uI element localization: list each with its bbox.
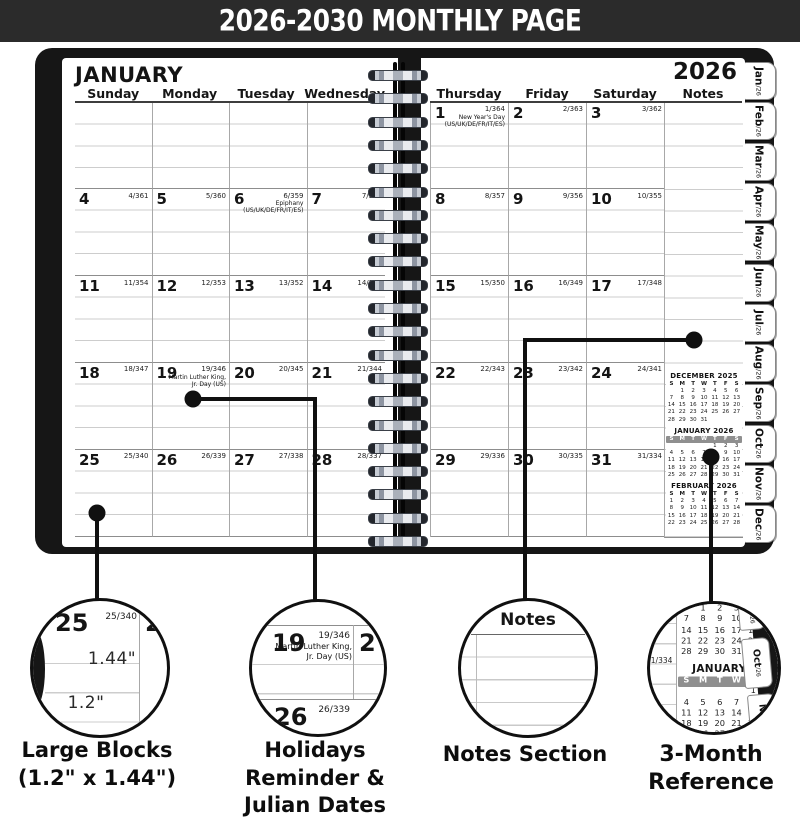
mini-calendar-week-row: 891011121314 xyxy=(666,505,742,512)
dow-letter: S xyxy=(666,491,677,498)
day-cell: 33/362 xyxy=(587,103,665,190)
holiday-label: Epiphany(US/UK/DE/FR/IT/ES) xyxy=(243,200,303,214)
day-number: 30 xyxy=(513,451,534,469)
mini-day: 3 xyxy=(778,688,781,699)
mini-day: 27 xyxy=(731,409,742,416)
binding-coil xyxy=(368,163,428,174)
julian-date: 6/359 xyxy=(283,192,303,200)
magnifier-holidays: 7 19 19/346 Martin Luther King, Jr. Day … xyxy=(249,599,387,737)
mini-day: 6 xyxy=(720,498,731,505)
magnified-tab-sep: Sep/26 xyxy=(736,601,766,631)
tab-label: Oct/26 xyxy=(746,648,767,677)
day-number: 3 xyxy=(591,104,601,122)
holiday-label: New Year's Day(US/UK/DE/FR/IT/ES) xyxy=(445,114,505,128)
mini-day: 20 xyxy=(778,626,781,637)
mini-calendar-dow-row: SMTWTFS xyxy=(666,491,742,498)
mini-day: 9 xyxy=(720,450,731,457)
mini-day: 21 xyxy=(666,409,677,416)
julian-fragment: 31/334 xyxy=(647,656,672,665)
next-day-fragment: 2 xyxy=(145,609,162,637)
mini-day: 26 xyxy=(695,731,712,735)
julian-date: 24/341 xyxy=(637,365,662,373)
magnified-tab-oct: Oct/26 xyxy=(741,637,773,689)
tab-year: /26 xyxy=(755,168,763,178)
day-number: 21 xyxy=(312,364,333,382)
mini-day: 13 xyxy=(688,457,699,464)
tab-label: Nov/26 xyxy=(750,467,769,500)
julian-date: 8/357 xyxy=(485,192,505,200)
julian-date: 26/339 xyxy=(201,452,226,460)
mini-day: 4 xyxy=(699,498,710,505)
day-cell: 1010/355 xyxy=(587,189,665,276)
caption-notes: Notes Section xyxy=(430,741,620,769)
right-month-grid: 11/364New Year's Day(US/UK/DE/FR/IT/ES)2… xyxy=(430,103,665,537)
mini-day: 19 xyxy=(695,720,712,731)
dow-letter: S xyxy=(731,491,742,498)
julian-date: 15/350 xyxy=(480,279,505,287)
tab-apr: Apr/26 xyxy=(742,183,776,221)
mini-day: 13 xyxy=(720,505,731,512)
mini-day: 29 xyxy=(695,648,712,659)
mini-calendar-week-row: 78910111213 xyxy=(666,395,742,402)
mini-day: 9 xyxy=(688,395,699,402)
mini-day: 5 xyxy=(677,450,688,457)
mini-day: 17 xyxy=(778,709,781,720)
mini-day xyxy=(728,688,745,699)
tab-month: Oct xyxy=(753,428,765,448)
day-cell: 11/364New Year's Day(US/UK/DE/FR/IT/ES) xyxy=(431,103,509,190)
dow-letter: S xyxy=(666,381,677,388)
day-number: 4 xyxy=(79,190,89,208)
day-number: 22 xyxy=(435,364,456,382)
tab-sep: Sep/26 xyxy=(742,384,776,422)
mini-calendar-dow-row: SMTWTFS xyxy=(666,436,742,443)
mini-day: 2 xyxy=(688,388,699,395)
mini-day: 1 xyxy=(666,498,677,505)
mini-day: 20 xyxy=(688,465,699,472)
day-cell: 22/363 xyxy=(509,103,587,190)
mini-day: 12 xyxy=(677,457,688,464)
julian-date: 10/355 xyxy=(637,192,662,200)
binding-coil xyxy=(368,303,428,314)
dow-letter: T xyxy=(688,436,699,443)
mini-day: 5 xyxy=(720,388,731,395)
mini-day: 8 xyxy=(709,450,720,457)
banner-title: 2026-2030 MONTHLY PAGE xyxy=(219,4,582,37)
mini-day: 25 xyxy=(709,409,720,416)
binding-coil xyxy=(368,93,428,104)
binding-coil xyxy=(368,489,428,500)
mini-day: 26 xyxy=(677,472,688,479)
tab-oct: Oct/26 xyxy=(742,425,776,463)
mini-day: 17 xyxy=(688,513,699,520)
dow-letter: F xyxy=(720,491,731,498)
day-number: 17 xyxy=(591,277,612,295)
day-number: 9 xyxy=(513,190,523,208)
julian-fragment: 7 xyxy=(256,614,262,624)
notes-column: DECEMBER 2025SMTWTFS12345678910111213141… xyxy=(664,103,743,538)
tab-year: /26 xyxy=(755,249,763,259)
day-cell: 1515/350 xyxy=(431,276,509,363)
binding-coil xyxy=(368,513,428,524)
mini-day: 2 xyxy=(720,443,731,450)
tab-year: /26 xyxy=(748,614,756,624)
tab-year: /26 xyxy=(755,369,763,379)
day-number: 10 xyxy=(591,190,612,208)
tab-mar: Mar/26 xyxy=(742,143,776,181)
dow-letter: T xyxy=(688,381,699,388)
mini-day: 21 xyxy=(699,465,710,472)
tab-label: Nov/26 xyxy=(752,703,774,735)
mini-day: 16 xyxy=(711,626,728,637)
weekday-label: Thursday xyxy=(430,86,508,101)
binding-coil xyxy=(368,140,428,151)
mini-calendar-week-row: 22232425262728 xyxy=(666,520,742,527)
day-number: 27 xyxy=(234,451,255,469)
mini-day: 13 xyxy=(778,616,781,627)
day-cell: 2626/339 xyxy=(153,450,231,537)
mini-day xyxy=(778,648,781,659)
julian-date: 4/361 xyxy=(128,192,148,200)
day-cell: 55/360 xyxy=(153,189,231,276)
weekday-label: Sunday xyxy=(75,86,151,101)
mini-day: 23 xyxy=(711,637,728,648)
magnified-julian: 25/340 xyxy=(95,612,137,622)
day-cell: 1919/346Martin Luther King,Jr. Day (US) xyxy=(153,363,231,450)
holiday-line: Epiphany xyxy=(243,200,303,207)
tab-feb: Feb/26 xyxy=(742,102,776,140)
mini-calendar-week-row: 25262728293031 xyxy=(666,472,742,479)
mini-day: 23 xyxy=(688,409,699,416)
dow-letter: M xyxy=(677,436,688,443)
tab-dec: Dec/26 xyxy=(742,505,776,543)
mini-day: 24 xyxy=(731,465,742,472)
mini-calendar-week-row: 123 xyxy=(666,443,742,450)
mini-day: 30 xyxy=(711,648,728,659)
day-number: 16 xyxy=(513,277,534,295)
tab-year: /26 xyxy=(755,127,763,137)
day-number: 2 xyxy=(513,104,523,122)
mini-day: 14 xyxy=(666,402,677,409)
binding-coil xyxy=(368,256,428,267)
tab-month: Sep xyxy=(753,387,765,409)
mini-calendar-week-row: 45678910 xyxy=(666,450,742,457)
day-cell: 1212/353 xyxy=(153,276,231,363)
mini-day: 23 xyxy=(720,465,731,472)
mini-day: 18 xyxy=(678,720,695,731)
mini-day: 24 xyxy=(699,409,710,416)
dow-letter: S xyxy=(731,436,742,443)
tab-month: Jun xyxy=(753,268,765,287)
mini-day xyxy=(711,688,728,699)
tab-year: /26 xyxy=(755,207,763,217)
dow-letter: W xyxy=(699,436,710,443)
julian-date: 2/363 xyxy=(563,105,583,113)
dow-letter: S xyxy=(666,436,677,443)
mini-day: 28 xyxy=(728,731,745,735)
weekday-label: Monday xyxy=(151,86,227,101)
julian-date: 23/342 xyxy=(558,365,583,373)
mini-day: 9 xyxy=(711,616,728,627)
mini-day: 20 xyxy=(711,720,728,731)
binding-coil xyxy=(368,117,428,128)
mini-day: 8 xyxy=(666,505,677,512)
mini-day: 27 xyxy=(688,472,699,479)
tab-year: /26 xyxy=(755,409,763,419)
mini-day: 6 xyxy=(731,388,742,395)
mini-day: 23 xyxy=(677,520,688,527)
mini-day: 1 xyxy=(709,443,720,450)
mini-day: 26 xyxy=(720,409,731,416)
holiday-line: Jr. Day (US) xyxy=(169,381,226,388)
julian-date: 12/353 xyxy=(201,279,226,287)
mini-day: 30 xyxy=(688,417,699,424)
mini-day: 2 xyxy=(711,605,728,616)
mini-calendar: DECEMBER 2025SMTWTFS12345678910111213141… xyxy=(666,372,742,424)
mini-day: 12 xyxy=(695,709,712,720)
mini-calendar-title: FEBRUARY 2026 xyxy=(666,482,742,490)
mini-day: 4 xyxy=(709,388,720,395)
cover-edge xyxy=(30,629,45,709)
mini-day: 28 xyxy=(678,648,695,659)
day-cell: 1818/347 xyxy=(75,363,153,450)
mini-day: 11 xyxy=(699,505,710,512)
mini-day: 22 xyxy=(709,465,720,472)
tab-month: Jan xyxy=(753,67,765,85)
magnified-day: 25 xyxy=(55,609,88,637)
tab-year: /26 xyxy=(755,325,763,335)
mini-day: 6 xyxy=(688,450,699,457)
binding-coil xyxy=(368,187,428,198)
mini-calendar-week-row: 14151617181920 xyxy=(666,402,742,409)
mini-day: 6 xyxy=(711,698,728,709)
mini-day: 3 xyxy=(699,388,710,395)
mini-day: 27 xyxy=(720,520,731,527)
mini-day: 4 xyxy=(666,450,677,457)
tab-label: Sep/26 xyxy=(740,601,762,625)
binding-coil xyxy=(368,466,428,477)
tab-year: /26 xyxy=(755,490,763,500)
dow-letter: W xyxy=(699,381,710,388)
julian-date: 22/343 xyxy=(480,365,505,373)
day-number: 23 xyxy=(513,364,534,382)
julian-date: 13/352 xyxy=(279,279,304,287)
mini-day: 14 xyxy=(678,626,695,637)
day-cell: 44/361 xyxy=(75,189,153,276)
binding-coil xyxy=(368,373,428,384)
day-cell: 2424/341 xyxy=(587,363,665,450)
julian-date: 1/364 xyxy=(485,105,505,113)
mini-day: 10 xyxy=(778,698,781,709)
mini-day: 10 xyxy=(688,505,699,512)
empty-day-cell xyxy=(230,103,308,190)
mini-calendar-week-row: 15161718192021 xyxy=(666,513,742,520)
dow-letter: M xyxy=(677,381,688,388)
day-number: 18 xyxy=(79,364,100,382)
holiday-line: (US/UK/DE/FR/IT/ES) xyxy=(243,207,303,214)
tab-month: Dec xyxy=(753,508,765,530)
julian-date: 20/345 xyxy=(279,365,304,373)
dow-letter: S xyxy=(778,601,781,605)
mini-day: 28 xyxy=(666,417,677,424)
row-border xyxy=(252,625,384,626)
tab-label: Apr/26 xyxy=(750,186,769,217)
mini-calendar-title: JANUARY 2026 xyxy=(666,427,742,435)
mini-day: 31 xyxy=(699,417,710,424)
next-day-fragment: 2 xyxy=(359,629,376,657)
mini-day: 16 xyxy=(720,457,731,464)
julian-date: 5/360 xyxy=(206,192,226,200)
mini-day xyxy=(688,443,699,450)
mini-day: 11 xyxy=(678,709,695,720)
dow-letter: S xyxy=(678,677,695,688)
mini-day: 29 xyxy=(709,472,720,479)
three-month-reference: DECEMBER 2025SMTWTFS12345678910111213141… xyxy=(666,369,742,529)
mini-calendar: JANUARY 2026SMTWTFS123456789101112131415… xyxy=(666,427,742,479)
day-number: 13 xyxy=(234,277,255,295)
binding-coil xyxy=(368,233,428,244)
mini-day: 24 xyxy=(778,720,781,731)
tab-label: Oct/26 xyxy=(750,428,769,459)
mini-calendar-title: DECEMBER 2025 xyxy=(666,372,742,380)
mini-day: 27 xyxy=(711,731,728,735)
mini-day: 14 xyxy=(731,505,742,512)
mini-day: 11 xyxy=(666,457,677,464)
day-number: 24 xyxy=(591,364,612,382)
tab-month: Aug xyxy=(753,346,765,369)
julian-date: 27/338 xyxy=(279,452,304,460)
tab-month: Nov xyxy=(753,467,765,490)
tab-jun: Jun/26 xyxy=(742,264,776,302)
day-cell: 99/356 xyxy=(509,189,587,276)
mini-day: 7 xyxy=(731,498,742,505)
mini-day xyxy=(677,443,688,450)
dow-letter: F xyxy=(720,436,731,443)
day-cell: 2323/342 xyxy=(509,363,587,450)
tab-month: Oct xyxy=(750,649,763,668)
day-number: 20 xyxy=(234,364,255,382)
tab-label: Mar/26 xyxy=(750,145,769,178)
holiday-line: (US/UK/DE/FR/IT/ES) xyxy=(445,121,505,128)
dow-letter: T xyxy=(711,677,728,688)
tab-label: Feb/26 xyxy=(750,105,769,137)
day-cell: 1111/354 xyxy=(75,276,153,363)
mini-day: 17 xyxy=(699,402,710,409)
mini-day: 18 xyxy=(666,465,677,472)
magnified-julian: 19/346 xyxy=(292,631,350,641)
mini-day: 7 xyxy=(666,395,677,402)
tab-month: Nov xyxy=(756,703,769,725)
mini-day: 2 xyxy=(677,498,688,505)
dow-letter: M xyxy=(695,677,712,688)
mini-day: 28 xyxy=(731,520,742,527)
julian-date: 16/349 xyxy=(558,279,583,287)
day-cell: 66/359Epiphany(US/UK/DE/FR/IT/ES) xyxy=(230,189,308,276)
holiday-line: Martin Luther King, xyxy=(169,374,226,381)
day-cell: 3131/334 xyxy=(587,450,665,537)
tab-label: Jul/26 xyxy=(750,310,769,335)
mini-calendar-week-row: 1234567 xyxy=(666,498,742,505)
mini-day: 19 xyxy=(677,465,688,472)
mini-day: 26 xyxy=(709,520,720,527)
mini-day: 15 xyxy=(666,513,677,520)
empty-day-cell xyxy=(75,103,153,190)
day-number: 8 xyxy=(435,190,445,208)
mini-day: 6 xyxy=(778,605,781,616)
day-number: 25 xyxy=(79,451,100,469)
tab-jan: Jan/26 xyxy=(742,62,776,100)
binding-coil xyxy=(368,326,428,337)
notes-header: Notes xyxy=(461,610,595,630)
julian-date: 3/362 xyxy=(642,105,662,113)
weekday-label: Friday xyxy=(508,86,586,101)
holiday-text: Martin Luther King, Jr. Day (US) xyxy=(275,642,352,661)
tab-jul: Jul/26 xyxy=(742,304,776,342)
mini-day xyxy=(731,417,742,424)
day-cell: 3030/335 xyxy=(509,450,587,537)
mini-day: 18 xyxy=(709,402,720,409)
julian-date: 29/336 xyxy=(480,452,505,460)
mini-day: 27 xyxy=(778,637,781,648)
caption-holidays: Holidays Reminder & Julian Dates xyxy=(205,737,425,820)
year-label: 2026 xyxy=(673,59,737,85)
mini-day: 7 xyxy=(699,450,710,457)
day-cell: 88/357 xyxy=(431,189,509,276)
day-number: 26 xyxy=(157,451,178,469)
tab-label: May/26 xyxy=(750,225,769,260)
mini-day: 10 xyxy=(731,450,742,457)
mini-day: 13 xyxy=(711,709,728,720)
mini-day: 8 xyxy=(695,616,712,627)
day-number: 28 xyxy=(312,451,333,469)
caption-reference: 3-Month Reference xyxy=(601,741,800,796)
weekday-header-row-left: SundayMondayTuesdayWednesday xyxy=(75,86,385,101)
tab-year: /26 xyxy=(760,724,768,734)
mini-day: 22 xyxy=(695,637,712,648)
tab-nov: Nov/26 xyxy=(742,465,776,503)
mini-day: 7 xyxy=(728,698,745,709)
mini-day: 21 xyxy=(731,513,742,520)
mini-day: 7 xyxy=(678,616,695,627)
day-cell: 2222/343 xyxy=(431,363,509,450)
binding-coil xyxy=(368,420,428,431)
julian-date: 19/346 xyxy=(201,365,226,373)
tab-month: Mar xyxy=(753,145,765,168)
mini-day: 16 xyxy=(677,513,688,520)
mini-day: 21 xyxy=(728,720,745,731)
tab-may: May/26 xyxy=(742,223,776,261)
mini-day: 1 xyxy=(677,388,688,395)
mini-day xyxy=(678,605,695,616)
mini-day: 3 xyxy=(688,498,699,505)
weekday-label: Tuesday xyxy=(228,86,304,101)
day-cell: 1616/349 xyxy=(509,276,587,363)
mini-day: 31 xyxy=(778,731,781,735)
binding-coil xyxy=(368,396,428,407)
tab-label: Aug/26 xyxy=(750,346,769,380)
planner-right-page: 2026 ThursdayFridaySaturdayNotes 11/364N… xyxy=(421,58,745,547)
magnifier-large-blocks: 25 25/340 2 1.44" 1.2" xyxy=(30,598,170,738)
mini-day xyxy=(678,688,695,699)
mini-day: 12 xyxy=(709,505,720,512)
dow-letter: T xyxy=(709,436,720,443)
mini-day: 14 xyxy=(728,709,745,720)
mini-day: 5 xyxy=(695,698,712,709)
dow-letter: W xyxy=(728,677,745,688)
julian-date: 11/354 xyxy=(124,279,149,287)
mini-day: 11 xyxy=(709,395,720,402)
mini-day xyxy=(695,688,712,699)
